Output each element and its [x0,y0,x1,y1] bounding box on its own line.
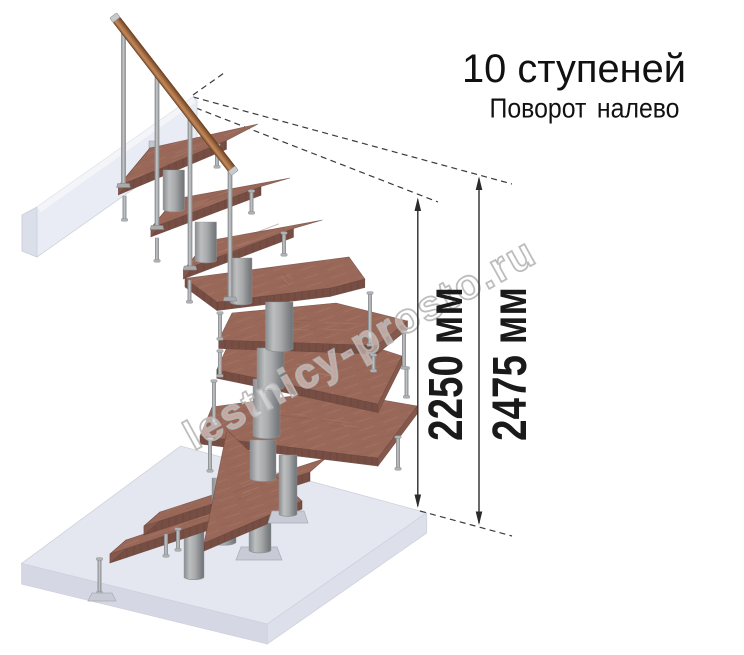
svg-text:10 ступеней: 10 ступеней [462,47,686,91]
svg-text:2250 мм: 2250 мм [419,287,473,441]
svg-text:Поворот налево: Поворот налево [490,93,680,124]
svg-text:2475 мм: 2475 мм [483,287,537,441]
